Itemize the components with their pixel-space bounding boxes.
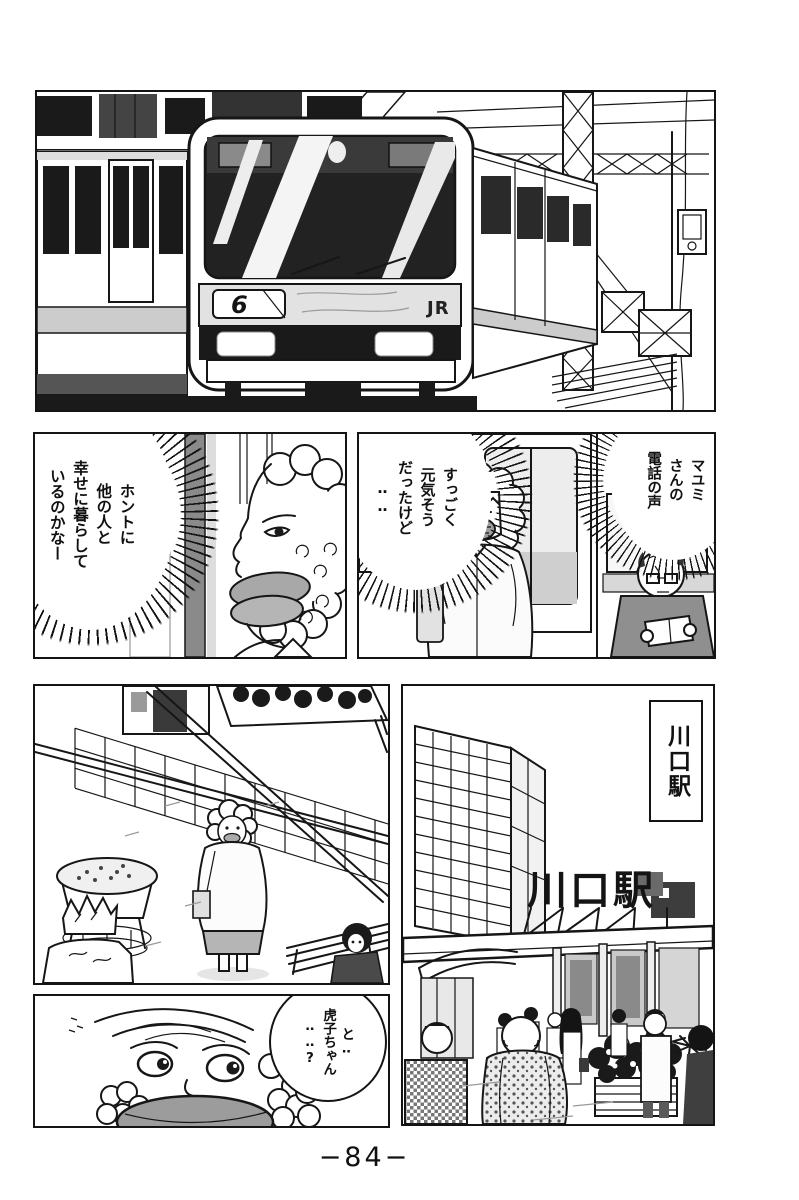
speech-text: と‥ 虎子ちゃん ‥‥? (301, 1008, 356, 1076)
building-icon (415, 726, 545, 944)
train-scene-art: 6 JR (37, 92, 714, 410)
jr-logo: JR (425, 298, 450, 319)
destination-number: 6 (231, 291, 248, 319)
plaza-art (35, 686, 388, 983)
seated-woman-icon (331, 923, 383, 983)
headlight-left-icon (217, 332, 275, 356)
monologue-text: すっごく 元気そう だったけど ‥‥ (371, 460, 461, 535)
panel-train-interior: すっごく 元気そう だったけど ‥‥ マユミ さんの 電話の声 (357, 432, 716, 659)
wall-icon (672, 92, 706, 410)
panel-station-exterior: 川口駅 (401, 684, 715, 1126)
panel-face-closeup: と‥ 虎子ちゃん ‥‥? (33, 994, 390, 1128)
bangs-icon (95, 1009, 253, 1042)
page-number: −84− (0, 1142, 729, 1173)
skirt-icon (203, 931, 263, 954)
walking-woman-icon (193, 800, 269, 981)
sweat-marks-icon (69, 1018, 83, 1032)
roof-sign-text: 川口駅 (527, 868, 656, 914)
eyes-icon (131, 1042, 249, 1081)
manga-page: 6 JR (0, 0, 799, 1200)
grass-icon (375, 716, 387, 752)
narration-text: マユミ さんの 電話の声 (641, 451, 706, 509)
shoulder-bag-icon (193, 891, 210, 918)
panel-train-arriving: 6 JR (35, 90, 716, 412)
panel-woman-thinking: ホントに 他の人と 幸せに暮らして いるのかなー (33, 432, 347, 659)
panel-plaza-overhead (33, 684, 390, 985)
train-front-icon: 6 JR (187, 118, 477, 410)
left-train-icon (37, 152, 187, 410)
thought-text: ホントに 他の人と 幸せに暮らして いるのかなー (45, 460, 138, 569)
right-edge-person-icon (683, 1025, 713, 1124)
station-caption-box: 川口駅 (649, 700, 703, 822)
headlight-right-icon (375, 332, 433, 356)
train-side-icon (473, 148, 597, 378)
station-caption-text: 川口駅 (663, 724, 688, 799)
mascot-mark-icon (328, 141, 346, 163)
nose-icon (185, 1080, 193, 1096)
